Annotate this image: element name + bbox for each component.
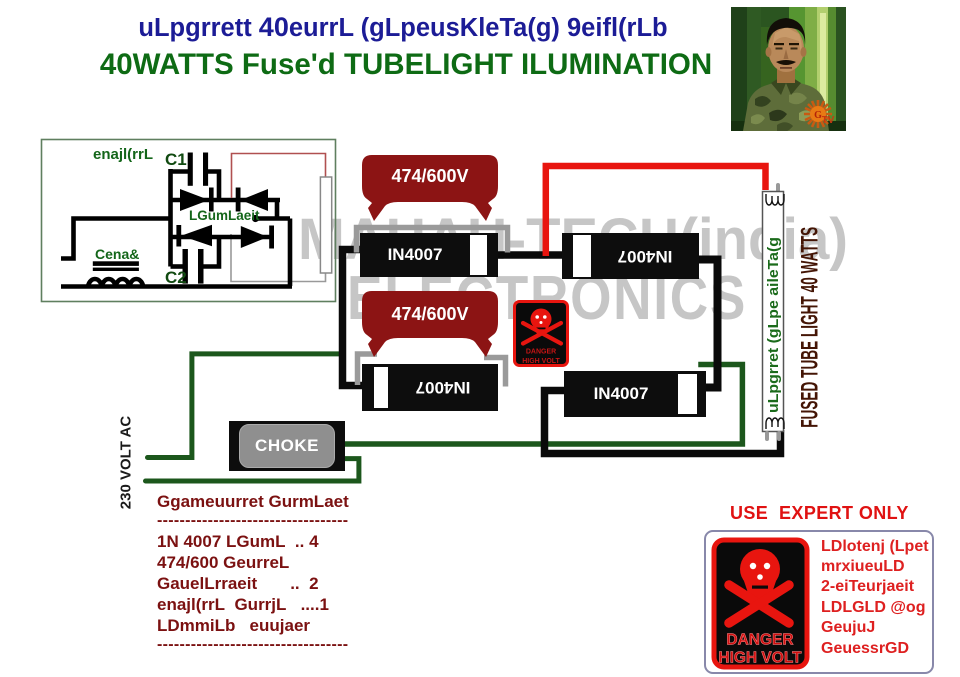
- svg-text:HIGH VOLT: HIGH VOLT: [718, 650, 802, 667]
- svg-text:DANGER: DANGER: [726, 632, 793, 649]
- svg-text:FUSED TUBE LIGHT 40 WATTS: FUSED TUBE LIGHT 40 WATTS: [797, 227, 824, 428]
- svg-text:uLpgrret (gLpe aileTa(g: uLpgrret (gLpe aileTa(g: [765, 237, 782, 413]
- svg-text:TV: TV: [822, 115, 835, 126]
